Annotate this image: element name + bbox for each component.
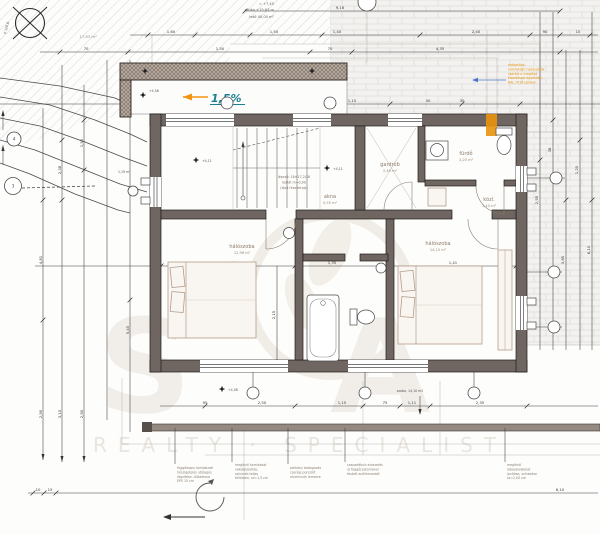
area-left-small: 1,19 m²: [118, 170, 131, 174]
note-line: párkány bádogozás: [290, 466, 321, 470]
dim: 1,50: [79, 138, 84, 147]
dim: 2,55: [534, 195, 539, 204]
note-block-1: függőleges homlokzati hőszigetelés utóla…: [177, 466, 213, 483]
stair-note-2: korlát m=0,90: [282, 181, 306, 185]
washbasin-hall: [284, 228, 295, 239]
room-bedroom-right-area: 14,10 m²: [430, 248, 447, 252]
level-line-1: = +7,45: [259, 2, 274, 6]
level-mark-1: +4,11: [202, 159, 212, 163]
room-wardrobe: gardrób: [380, 161, 400, 168]
dim-top-span: 9,16: [336, 5, 345, 10]
dim: 95: [203, 400, 208, 405]
note-line: EPS 15 cm: [177, 479, 194, 483]
terrace: +4,56 1,5%: [120, 63, 347, 117]
dim: 2,38: [57, 165, 62, 174]
dim: 3,10: [57, 409, 62, 418]
bed-left: [168, 262, 256, 338]
room-bath-top: fürdő: [459, 151, 472, 157]
dim: 1,15: [338, 400, 347, 405]
area-top-left: 17,63 m²: [79, 34, 97, 39]
room-bedroom-right: hálószoba: [425, 240, 450, 247]
washbasin-bath: [376, 263, 386, 273]
dim: 10: [576, 29, 581, 34]
note-line: rögzítése, dübelezve: [177, 475, 210, 479]
dim: 2,90: [38, 409, 43, 418]
note-block-5: meglévő lábazatvakolat javítása, színezé…: [506, 463, 537, 480]
level-mark-2: +4,11: [333, 167, 343, 171]
toilet-bath: [350, 309, 375, 325]
dim: 1,20: [574, 165, 579, 174]
note-line: cseréje porszórt: [290, 470, 316, 474]
room-hall-area: 3,10 m²: [482, 204, 497, 208]
dim: 30: [460, 98, 465, 103]
floor-plan-drawing: S A REALTY · SPECIALIST 4 3 P 128,6: [0, 0, 600, 534]
note-line: csapadékvíz elvezetés: [347, 463, 383, 467]
stair-note-3: (lásd részletrajz): [280, 186, 307, 190]
toilet-top: [496, 128, 512, 155]
dim: 1,15: [348, 98, 357, 103]
dim: 1,41: [449, 260, 458, 265]
level-line-3: tető 40,00 m²: [249, 15, 274, 19]
dim: 2,90: [79, 409, 84, 418]
orange-note-line: RAL 7016 színben: [508, 81, 536, 85]
bed-right: [398, 266, 482, 344]
dim: 2,15: [271, 310, 276, 319]
room-wardrobe-area: 2,45 m²: [383, 169, 398, 173]
level-mark-terrace: +4,56: [149, 89, 159, 93]
note-line: sz=2,00 cm: [507, 476, 526, 480]
room-shaft: akna: [324, 194, 336, 200]
note-line: új függőcsatornával: [347, 467, 379, 471]
dim: 2,35: [476, 400, 485, 405]
staircase: lépcső: 18×17,2/28 korlát m=0,90 (lásd r…: [233, 126, 320, 210]
room-hall: közl.: [483, 197, 495, 203]
orange-note-line: cseréje a meglévő: [508, 72, 537, 76]
dim: 5,45: [125, 325, 130, 334]
dim: 50: [426, 98, 431, 103]
dim: 2,40: [472, 29, 481, 34]
dim: 1,50: [270, 29, 279, 34]
dim: 1,11: [408, 400, 417, 405]
dim: 1,50: [216, 46, 225, 51]
watermark-tagline: REALTY · SPECIALIST: [93, 433, 507, 457]
room-bath-top-area: 3,20 m²: [459, 158, 474, 162]
dim: 10: [36, 487, 41, 492]
note-line: színezés teljes: [235, 472, 258, 476]
note-line: alumínium lemezre: [290, 475, 321, 479]
contour-mark-4: 4: [13, 137, 16, 142]
dim: 75: [383, 400, 388, 405]
orange-note-line: homlokzati nyílászárók: [508, 67, 545, 71]
note-block-2: meglévő homlokzat vakolatjavítás, színez…: [235, 463, 268, 480]
stair-note-1: lépcső: 18×17,2/28: [278, 175, 310, 179]
note-line: meglévő homlokzat: [235, 463, 267, 467]
level-mark-3: +4,08: [228, 388, 238, 392]
note-line: felületen, sz=1,5 cm: [235, 476, 268, 480]
dim: 90: [543, 29, 548, 34]
dim: 1,60: [167, 29, 176, 34]
note-block-4: csapadékvíz elvezetés új függőcsatornáva…: [347, 463, 383, 476]
room-note-bottom: szoba, 14,10 m2: [397, 389, 424, 393]
dim: 15: [48, 487, 53, 492]
note-line: festett acéllemezből: [347, 472, 380, 476]
floor-plan-sheet: S A REALTY · SPECIALIST 4 3 P 128,6: [0, 0, 600, 534]
orange-note-line: kiosztással egyezően,: [508, 76, 543, 80]
room-bedroom-left: hálószoba: [229, 243, 254, 250]
room-bedroom-left-area: 12,96 m²: [234, 251, 251, 255]
dim: 6,10: [556, 487, 565, 492]
note-line: lábazatvakolat: [507, 467, 531, 471]
dim: 70: [84, 46, 89, 51]
dim: 2,50: [258, 400, 267, 405]
note-line: meglévő: [507, 463, 521, 467]
orange-note-line: módosítás:: [508, 63, 526, 67]
dim: 4,35: [436, 46, 445, 51]
dim: 4,81: [38, 255, 43, 264]
note-line: hőszigetelés utólagos: [177, 470, 212, 474]
modified-wall-highlight: [486, 114, 497, 136]
contour-mark-3: 3: [12, 184, 15, 189]
dim: 6,10: [586, 245, 591, 254]
washbasin-top: [426, 141, 448, 160]
room-shaft-area: 0,55 m²: [323, 201, 338, 205]
dim: 1,40: [333, 29, 342, 34]
level-line-2: attika +15,63 m: [245, 8, 275, 12]
note-line: javítása, színezése: [506, 472, 537, 476]
dim: 38: [547, 147, 552, 152]
note-line: vakolatjavítás,: [235, 467, 258, 471]
note-line: függőleges homlokzati: [177, 466, 213, 470]
bathtub: [307, 295, 339, 361]
dim: 70: [328, 46, 333, 51]
cabinet: [428, 188, 446, 206]
note-block-3: párkány bádogozás cseréje porszórt alumí…: [290, 466, 321, 479]
dim: 3,85: [560, 255, 565, 264]
